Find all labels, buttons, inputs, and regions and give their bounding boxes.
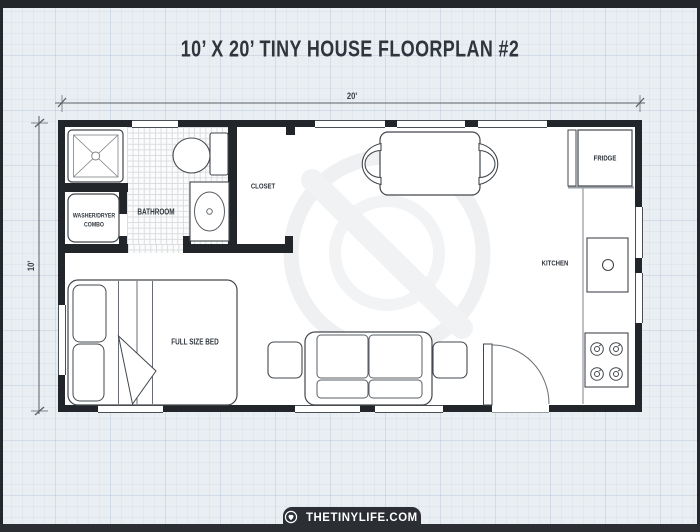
fixtures-layer — [0, 0, 700, 532]
stove — [585, 333, 628, 387]
side-table-left — [268, 342, 302, 378]
brand-tab: THETINYLIFE.COM — [283, 507, 421, 532]
entry-door-leaf — [484, 344, 493, 405]
chair-left — [362, 144, 381, 185]
closet-label: CLOSET — [251, 182, 275, 191]
washer-dryer-label: WASHER/DRYER COMBO — [72, 213, 114, 230]
bed-label: FULL SIZE BED — [171, 338, 219, 347]
sofa — [305, 332, 432, 405]
door-swing-arc — [492, 345, 549, 404]
toilet — [173, 133, 228, 175]
vanity-sink — [190, 182, 229, 241]
pillow — [73, 285, 106, 342]
shower — [68, 130, 123, 182]
kitchen-sink — [587, 238, 628, 292]
dining-table — [380, 132, 480, 195]
frame-top — [0, 0, 700, 8]
floorplan-page: 10’ X 20’ TINY HOUSE FLOORPLAN #2 — [0, 0, 700, 532]
brand-logo-icon — [284, 510, 298, 524]
bathroom-label: BATHROOM — [137, 208, 174, 217]
pillow — [73, 344, 104, 401]
brand-name: THETINYLIFE.COM — [306, 510, 418, 529]
counter-end-panel — [568, 130, 576, 186]
width-dimension-label: 20' — [347, 91, 357, 101]
fridge-label: FRIDGE — [594, 154, 617, 163]
kitchen-label: KITCHEN — [542, 259, 569, 268]
frame-left — [0, 0, 3, 532]
chair-right — [479, 144, 498, 185]
side-table-right — [433, 342, 467, 378]
depth-dimension-label: 10' — [26, 261, 36, 271]
